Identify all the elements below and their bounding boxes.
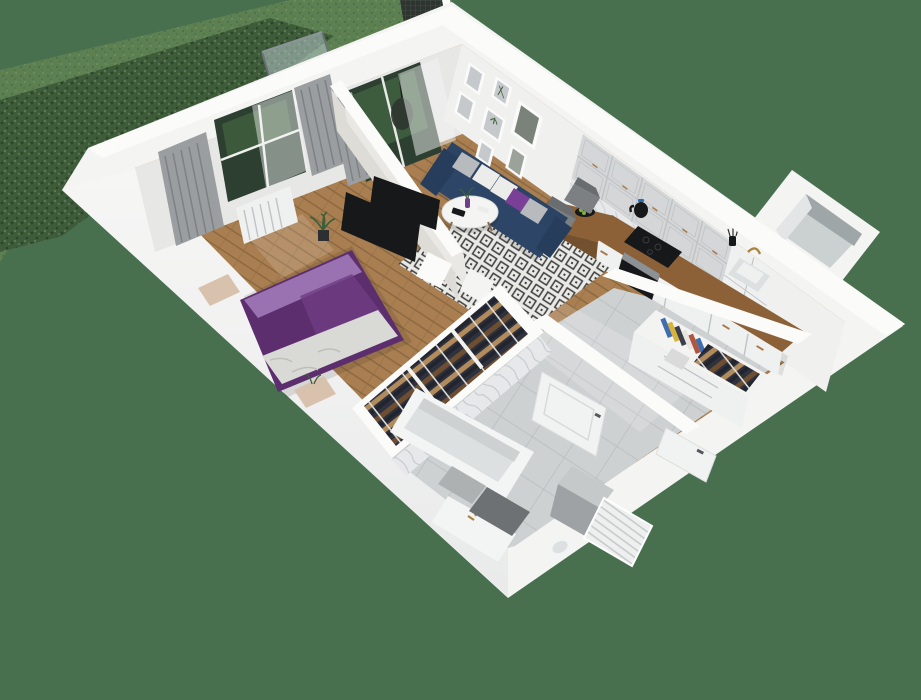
floor-plan-stage — [0, 0, 921, 700]
floor-plan-render — [0, 0, 921, 700]
